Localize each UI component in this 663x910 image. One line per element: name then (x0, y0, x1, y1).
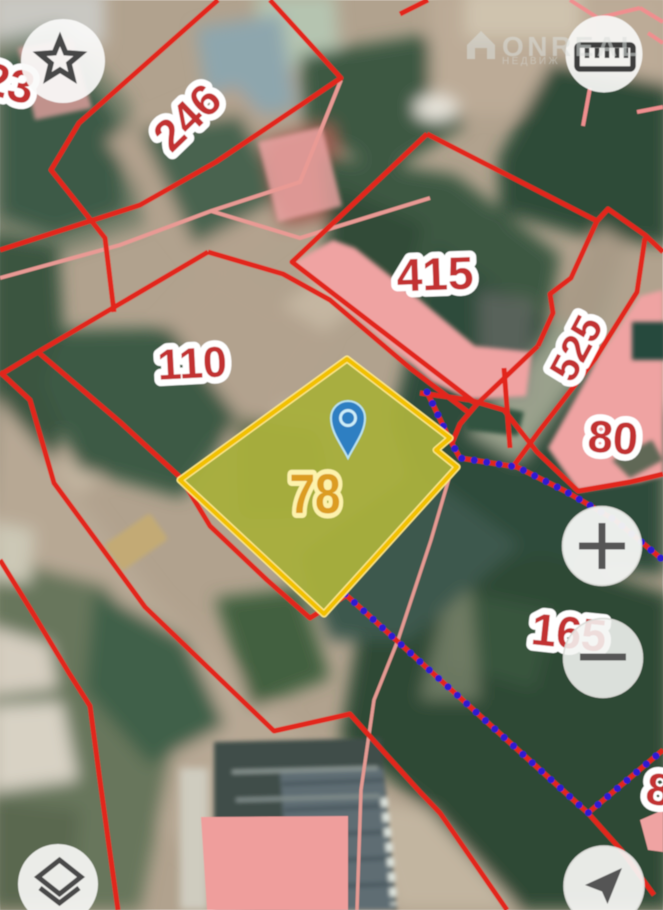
svg-text:80: 80 (586, 410, 639, 464)
svg-text:110: 110 (156, 338, 228, 390)
svg-text:415: 415 (396, 247, 475, 302)
svg-text:78: 78 (289, 463, 340, 525)
svg-text:НЕДВИЖ: НЕДВИЖ (502, 56, 560, 67)
